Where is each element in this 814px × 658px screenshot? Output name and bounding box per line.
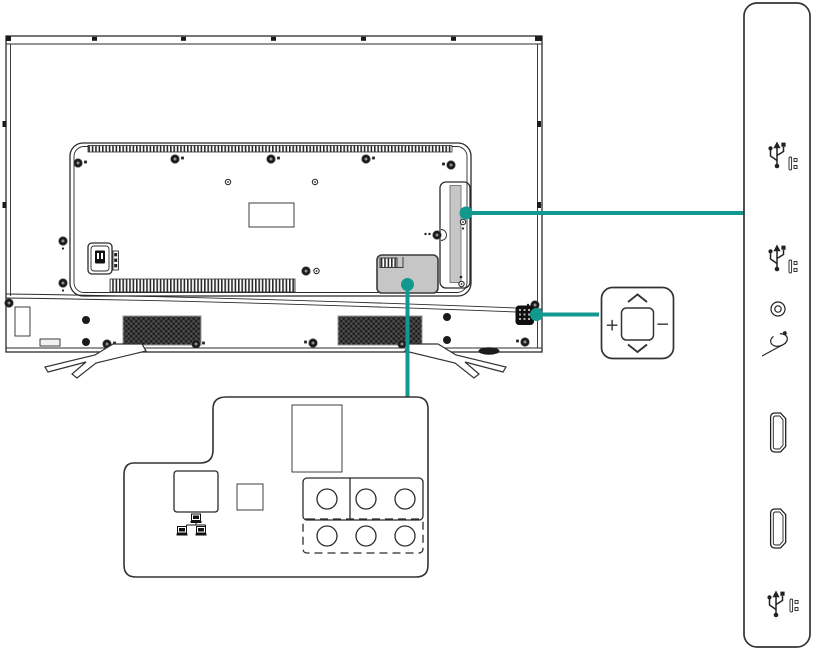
control-callout-line <box>541 313 599 317</box>
diagram-canvas: + − <box>0 0 814 658</box>
top-vent-strip <box>88 146 452 153</box>
side-ports-panel <box>744 3 810 647</box>
lower-bezel <box>5 294 542 348</box>
bezel-left-plate <box>15 307 30 336</box>
joystick-center-button[interactable] <box>622 308 654 340</box>
minus-button[interactable]: − <box>656 315 670 335</box>
label-plate <box>249 203 294 227</box>
tv-back-view <box>3 36 543 378</box>
port-cover-vent <box>380 258 397 268</box>
side-ports-callout <box>744 3 810 647</box>
bezel-left-tab <box>40 339 60 346</box>
cable-clip <box>479 347 500 355</box>
stand-leg-left <box>45 344 146 378</box>
plus-button[interactable]: + <box>605 316 619 336</box>
tv-outer-frame <box>6 36 542 352</box>
side-ports-callout-line <box>470 211 744 215</box>
bottom-ports-outline <box>124 397 428 577</box>
side-port-strip <box>450 186 461 283</box>
bottom-ports-callout <box>124 397 428 577</box>
speaker-grille-left <box>123 316 201 345</box>
ac-power-inlet <box>88 243 119 274</box>
side-port-recess <box>440 182 470 288</box>
tv-rear-diagram: + − <box>0 0 814 658</box>
bottom-vent-strip <box>110 279 295 292</box>
bottom-ports-callout-line <box>406 288 410 397</box>
control-callout: + − <box>602 288 674 359</box>
